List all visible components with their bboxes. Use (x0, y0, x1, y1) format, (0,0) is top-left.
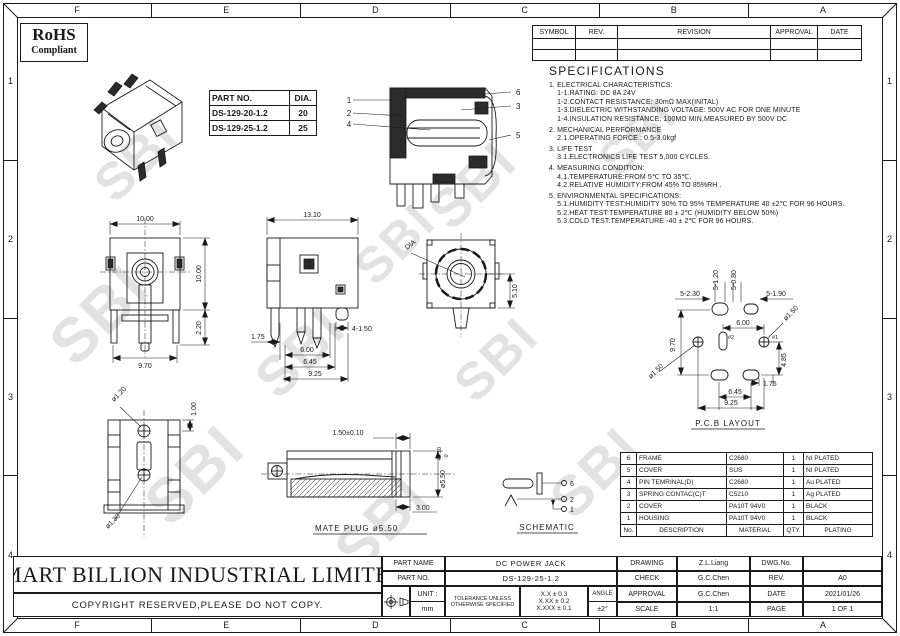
revision-cell-empty (618, 39, 771, 50)
isometric-view (50, 46, 215, 204)
revision-cell-empty (771, 39, 818, 50)
spec-line: 5.3.COLD TEST:TEMPERATURE -40 ± 2℃ FOR 9… (549, 218, 879, 226)
table-row: 4 PIN TEMRINAL(D) C2680 1 Au PLATED (621, 477, 873, 489)
material-description: FRAME (637, 453, 727, 465)
spec-line: 5. ENVIRONMENTAL SPECIFICATIONS: (549, 193, 879, 201)
material-plating: BLACK (804, 501, 873, 513)
table-row (533, 39, 862, 50)
part-no-cell: DS-129-20-1.2 (210, 106, 290, 121)
angle-cell: ANGLE ±2° (588, 586, 617, 617)
material-material: PA10T 94V0 (727, 513, 784, 525)
material-material: C2680 (727, 477, 784, 489)
section-view: 1 2 4 6 3 5 (335, 58, 535, 213)
rear-view: DIA 5.10 (395, 205, 545, 365)
material-no: 3 (621, 489, 637, 501)
zone-letter: E (152, 618, 301, 633)
table-row: SYMBOL REV. REVISION APPROVAL DATE (533, 26, 862, 39)
pcb-layout-view: 5-1.20 5-0.80 5-2.30 5-1.90 6.00 ø1.50 #… (615, 240, 815, 440)
material-description: COVER (637, 501, 727, 513)
spec-line: 1-2.CONTACT RESISTANCE: 30mΩ MAX(INITAL) (549, 99, 879, 107)
front-view: 10.00 10.00 2.20 9.70 (70, 195, 255, 380)
revision-table: SYMBOL REV. REVISION APPROVAL DATE (532, 25, 862, 61)
unit-value: mm (411, 602, 444, 617)
scale-label: SCALE (617, 602, 677, 617)
pcb-layout-title: P.C.B LAYOUT (695, 419, 761, 428)
approval-value: G.C.Chen (677, 586, 750, 602)
materials-header-qty: QTY. (784, 525, 804, 537)
zone-letter: F (3, 3, 152, 18)
material-plating: NI PLATED (804, 465, 873, 477)
spec-line: 5.1.HUMIDITY TEST:HUMIDITY 90% TO 95% TE… (549, 201, 879, 209)
mate-plug-title: MATE PLUG ø5.50 (315, 524, 398, 533)
table-row: 2 COVER PA10T 94V0 1 BLACK (621, 501, 873, 513)
revision-header: SYMBOL (533, 26, 576, 39)
zone-number: 4 (882, 476, 897, 633)
dim-label: ø1.30 (104, 513, 122, 531)
material-material: C5210 (727, 489, 784, 501)
revision-cell-empty (618, 50, 771, 61)
revision-header: APPROVAL (771, 26, 818, 39)
schematic-pin-label: 6 (570, 481, 574, 488)
dim-label: 1.75 (763, 381, 777, 388)
callout-2: 2 (347, 109, 352, 118)
dia-cell: 25 (290, 121, 317, 136)
material-qty: 1 (784, 513, 804, 525)
zone-letter: C (451, 618, 600, 633)
material-description: SPRING CONTAC(C)T (637, 489, 727, 501)
dim-label: 6.45 (728, 389, 742, 396)
dim-label: 10.00 (196, 265, 203, 283)
materials-header-no: No. (621, 525, 637, 537)
material-no: 4 (621, 477, 637, 489)
materials-header-plating: PLATING (804, 525, 873, 537)
dim-label: ø1.50 (782, 305, 800, 323)
zone-letters-top: F E D C B A (3, 3, 897, 18)
dim-label: 5.10 (512, 284, 519, 298)
dwg-no-value (803, 556, 882, 571)
spec-line: 2. MECHANICAL PERFORMANCE (549, 127, 879, 135)
spec-line: 4.2.RELATIVE HUMIDITY:FROM 45% TO 85%RH … (549, 182, 879, 190)
material-qty: 1 (784, 477, 804, 489)
material-plating: NI PLATED (804, 453, 873, 465)
revision-cell-empty (818, 50, 862, 61)
drawing-sheet: SBI SBI SBI SBI SBI SBI SBI SBI SBI SBI … (0, 0, 900, 636)
spec-line: 2.1.OPERATING FORCE : 0.5-3.0kgf (549, 135, 879, 143)
materials-header-description: DESCRIPTION (637, 525, 727, 537)
dim-label: 9.70 (138, 363, 152, 370)
zone-number: 2 (3, 161, 18, 319)
schematic-pin-label: 1 (570, 507, 574, 514)
dim-label: 1.75 (251, 334, 265, 341)
copyright-notice: COPYRIGHT RESERVED,PLEASE DO NOT COPY. (13, 593, 382, 617)
part-name-label: PART NAME (382, 556, 445, 571)
zone-number: 2 (882, 161, 897, 319)
table-row: 3 SPRING CONTAC(C)T C5210 1 Ag PLATED (621, 489, 873, 501)
dim-label: ø1.20 (110, 386, 128, 404)
dim-label: 9.70 (670, 338, 677, 352)
third-angle-projection-icon (383, 590, 409, 614)
material-qty: 1 (784, 465, 804, 477)
dim-label: 13.10 (303, 212, 321, 219)
spec-line: 4.1.TEMPERATURE:FROM 5℃ TO 35℃. (549, 174, 879, 182)
part-no-value: DS-129-25-1.2 (445, 571, 617, 586)
table-row: No. DESCRIPTION MATERIAL QTY. PLATING (621, 525, 873, 537)
dim-label: 6.45 (303, 359, 317, 366)
material-qty: 1 (784, 489, 804, 501)
spec-line: 3.1.ELECTRONICS LIFE TEST 5,000 CYCLES. (549, 154, 879, 162)
material-plating: Au PLATED (804, 477, 873, 489)
dim-label: ø1.50 (647, 363, 665, 381)
dim-tolerance-upper: +0.10 (437, 447, 443, 461)
revision-header: REV. (576, 26, 618, 39)
table-row: DS-129-20-1.2 20 (210, 106, 317, 121)
dim-label: 3.00 (416, 505, 430, 512)
zone-numbers-right: 1 2 3 4 (882, 3, 897, 633)
zone-letter: E (152, 3, 301, 18)
table-row: 5 COVER SUS 1 NI PLATED (621, 465, 873, 477)
drawing-label: DRAWING (617, 556, 677, 571)
approval-label: APPROVAL (617, 586, 677, 602)
material-no: 1 (621, 513, 637, 525)
dim-label: 2.20 (196, 321, 203, 335)
zone-number: 3 (3, 319, 18, 477)
dia-cell: 20 (290, 106, 317, 121)
dim-label: 5-1.90 (766, 291, 786, 298)
callout-4: 4 (347, 120, 352, 129)
spec-line: 5.2.HEAT TEST:TEMPERATURE 80 ± 2℃ (HUMID… (549, 210, 879, 218)
dim-label: 5-1.20 (713, 270, 720, 290)
angle-value: ±2° (589, 602, 616, 617)
company-name: SMART BILLION INDUSTRIAL LIMITED (13, 556, 382, 593)
page-label: PAGE (750, 602, 803, 617)
dim-label: ø5.50 (440, 470, 447, 488)
zone-letter: F (3, 618, 152, 633)
part-number-table: PART NO. DIA. DS-129-20-1.2 20 DS-129-25… (209, 90, 317, 136)
zone-letter: B (600, 3, 749, 18)
dim-label: DIA (404, 239, 418, 252)
callout-3: 3 (516, 102, 521, 111)
rev-label: REV. (750, 571, 803, 586)
dim-label: 5-0.80 (731, 270, 738, 290)
tolerance-values: X.X ± 0.3 X.XX ± 0.2 X.XXX ± 0.1 (520, 586, 588, 617)
material-qty: 1 (784, 453, 804, 465)
spec-line: 3. LIFE TEST (549, 146, 879, 154)
zone-number: 3 (882, 319, 897, 477)
date-label: DATE (750, 586, 803, 602)
dim-label: 4.85 (781, 353, 788, 367)
revision-cell-empty (818, 39, 862, 50)
rohs-title: RoHS (21, 25, 87, 45)
dim-label: 9.25 (308, 371, 322, 378)
tolerance-note-line2: OTHERWISE SPECIFIED (451, 602, 515, 608)
page-value: 1 OF 1 (803, 602, 882, 617)
material-qty: 1 (784, 501, 804, 513)
spec-line: 1-1.RATING: DC 8A 24V (549, 90, 879, 98)
zone-letter: B (600, 618, 749, 633)
table-row: DS-129-25-1.2 25 (210, 121, 317, 136)
title-block: SMART BILLION INDUSTRIAL LIMITED COPYRIG… (13, 556, 882, 617)
material-description: PIN TEMRINAL(D) (637, 477, 727, 489)
material-material: SUS (727, 465, 784, 477)
zone-numbers-left: 1 2 3 4 (3, 3, 18, 633)
specifications-block: SPECIFICATIONS 1. ELECTRICAL CHARACTERIS… (549, 64, 879, 227)
dim-label: 1.50±0.10 (332, 430, 363, 437)
zone-number: 1 (3, 3, 18, 161)
material-plating: BLACK (804, 513, 873, 525)
callout-1: 1 (347, 96, 352, 105)
dim-label: 6.00 (300, 347, 314, 354)
zone-letters-bottom: F E D C B A (3, 618, 897, 633)
dim-label: 4-1.50 (352, 326, 372, 333)
spec-line: 1-3.DIELECTRIC WITHSTANDING VOLTAGE: 500… (549, 107, 879, 115)
bottom-view: ø1.20 1.00 ø1.30 (80, 385, 225, 555)
schematic-view: 6 2 1 SCHEMATIC (495, 440, 600, 540)
scale-value: 1:1 (677, 602, 750, 617)
revision-header: DATE (818, 26, 862, 39)
tolerance-xxx: X.XXX ± 0.1 (536, 605, 571, 612)
dim-label: 6.00 (736, 320, 750, 327)
zone-letter: D (301, 3, 450, 18)
zone-letter: D (301, 618, 450, 633)
spec-line: 4. MEASURING CONDITION: (549, 165, 879, 173)
schematic-pin-label: 2 (570, 497, 574, 504)
material-no: 2 (621, 501, 637, 513)
revision-cell-empty (576, 50, 618, 61)
rev-value: A0 (803, 571, 882, 586)
zone-letter: A (749, 3, 897, 18)
revision-header: REVISION (618, 26, 771, 39)
material-description: COVER (637, 465, 727, 477)
pin-number-label: #1 (772, 335, 778, 341)
unit-cell: UNIT : mm (410, 586, 445, 617)
material-no: 6 (621, 453, 637, 465)
dim-label: 9.25 (724, 400, 738, 407)
part-table-header-dia: DIA. (290, 91, 317, 106)
dwg-no-label: DWG.No. (750, 556, 803, 571)
table-row (533, 50, 862, 61)
check-value: G.C.Chen (677, 571, 750, 586)
spec-line: 1-4.INSULATION RESISTANCE: 100MΩ MIN,MEA… (549, 116, 879, 124)
material-plating: Ag PLATED (804, 489, 873, 501)
part-no-cell: DS-129-25-1.2 (210, 121, 290, 136)
dim-label: 10.00 (136, 216, 154, 223)
specifications-title: SPECIFICATIONS (549, 64, 879, 78)
schematic-title: SCHEMATIC (519, 523, 575, 532)
callout-5: 5 (516, 131, 521, 140)
dim-tolerance-lower: 0 (444, 454, 450, 457)
table-row: 6 FRAME C2680 1 NI PLATED (621, 453, 873, 465)
pin-number-label: #2 (728, 335, 734, 341)
tolerance-x: X.X ± 0.3 (541, 591, 568, 598)
spec-line: 1. ELECTRICAL CHARACTERISTICS: (549, 82, 879, 90)
zone-letter: A (749, 618, 897, 633)
drawing-value: Z.L.Liang (677, 556, 750, 571)
material-no: 5 (621, 465, 637, 477)
part-no-label: PART NO. (382, 571, 445, 586)
material-material: PA10T 94V0 (727, 501, 784, 513)
tolerance-xx: X.XX ± 0.2 (538, 598, 569, 605)
zone-number: 1 (882, 3, 897, 161)
materials-header-material: MATERIAL (727, 525, 784, 537)
callout-6: 6 (516, 88, 521, 97)
projection-symbol-cell (382, 586, 410, 617)
dim-label: 5-2.30 (680, 291, 700, 298)
material-material: C2680 (727, 453, 784, 465)
tolerance-note: TOLERANCE UNLESS OTHERWISE SPECIFIED (445, 586, 520, 617)
revision-cell-empty (771, 50, 818, 61)
part-name-value: DC POWER JACK (445, 556, 617, 571)
revision-cell-empty (533, 39, 576, 50)
dim-label: 1.00 (191, 402, 198, 416)
part-table-header-partno: PART NO. (210, 91, 290, 106)
zone-letter: C (451, 3, 600, 18)
date-value: 2021/01/26 (803, 586, 882, 602)
table-row: 1 HOUSING PA10T 94V0 1 BLACK (621, 513, 873, 525)
angle-label: ANGLE (589, 587, 616, 602)
revision-cell-empty (533, 50, 576, 61)
unit-label: UNIT : (411, 587, 444, 602)
revision-cell-empty (576, 39, 618, 50)
materials-table: 6 FRAME C2680 1 NI PLATED 5 COVER SUS 1 … (620, 452, 873, 537)
material-description: HOUSING (637, 513, 727, 525)
check-label: CHECK (617, 571, 677, 586)
